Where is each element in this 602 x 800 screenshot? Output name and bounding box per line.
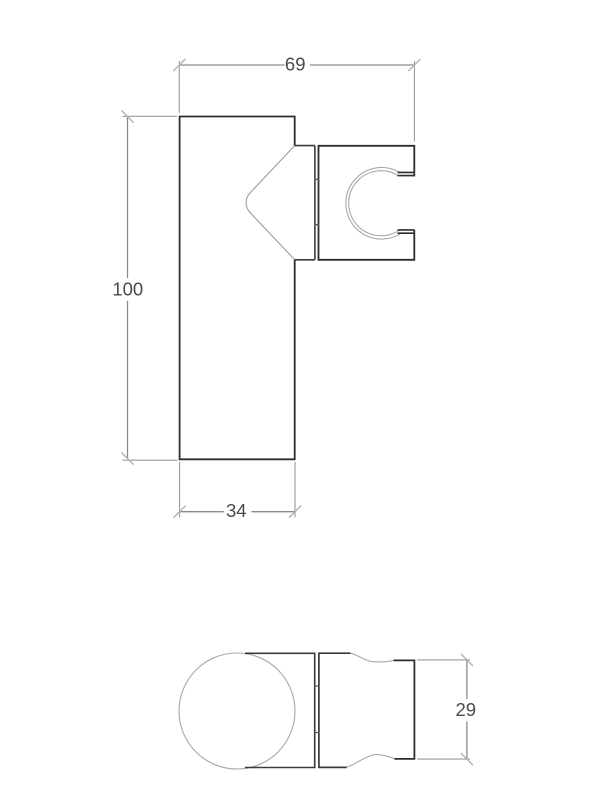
svg-text:100: 100 bbox=[112, 278, 143, 299]
svg-text:29: 29 bbox=[456, 699, 477, 720]
svg-text:69: 69 bbox=[285, 54, 306, 75]
svg-text:34: 34 bbox=[226, 500, 247, 521]
